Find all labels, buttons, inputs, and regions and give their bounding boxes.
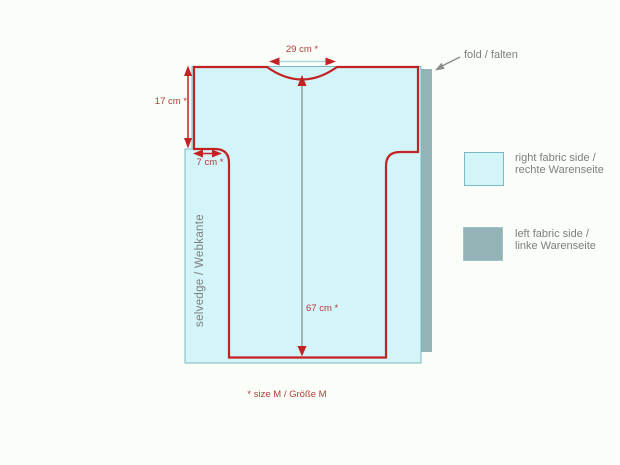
fold-arrow-head-icon — [435, 63, 445, 71]
fold-label: fold / falten — [464, 49, 518, 61]
legend-label-right-fabric-side: right fabric side / rechte Warenseite — [515, 153, 604, 176]
sleeve-depth-arrow-up-icon — [184, 66, 192, 77]
selvedge-label: selvedge / Webkante — [194, 212, 207, 329]
legend-label-line: left fabric side / — [515, 229, 596, 241]
sleeve-depth-arrow-down-icon — [184, 138, 192, 149]
legend-swatch-left-fabric-side — [463, 227, 503, 261]
dimension-neck-width: 29 cm * — [269, 45, 335, 55]
legend-label-line: right fabric side / — [515, 153, 604, 165]
dimension-sleeve-depth: 17 cm * — [147, 97, 187, 107]
fabric-under-layer — [421, 69, 432, 352]
legend-label-line: rechte Warenseite — [515, 165, 604, 177]
dimension-underarm-inset: 7 cm * — [190, 158, 230, 168]
legend-label-line: linke Warenseite — [515, 241, 596, 253]
neck-width-arrow-left-icon — [269, 58, 280, 66]
legend-label-left-fabric-side: left fabric side / linke Warenseite — [515, 229, 596, 252]
legend-swatch-right-fabric-side — [464, 152, 504, 186]
fold-arrow-shaft — [442, 57, 460, 66]
sewing-pattern-diagram: 29 cm * 17 cm * 7 cm * 67 cm * fold / fa… — [0, 0, 620, 465]
neck-width-arrow-right-icon — [326, 58, 337, 66]
size-note: * size M / Größe M — [227, 389, 347, 400]
dimension-body-length: 67 cm * — [306, 304, 356, 314]
